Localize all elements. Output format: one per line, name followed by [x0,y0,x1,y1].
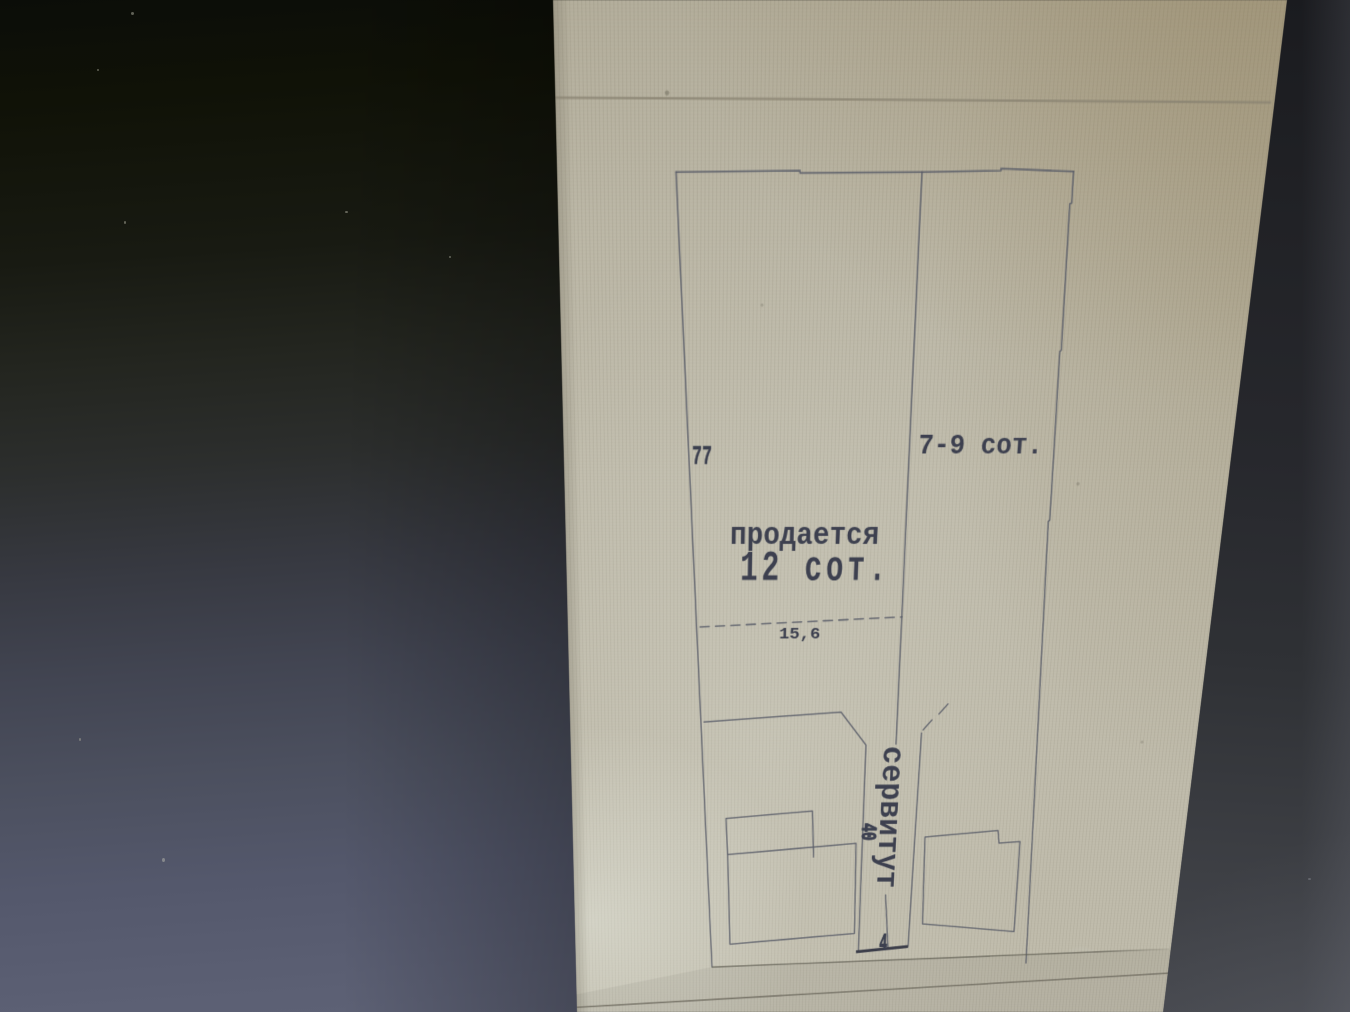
svg-text:4: 4 [879,930,888,958]
svg-text:77: 77 [692,442,712,472]
svg-text:сервитут: сервитут [868,746,909,888]
svg-text:15,6: 15,6 [779,625,821,643]
svg-text:7-9 сот.: 7-9 сот. [918,429,1045,463]
svg-text:40: 40 [855,823,880,841]
svg-text:12 сот.: 12 сот. [740,544,888,593]
